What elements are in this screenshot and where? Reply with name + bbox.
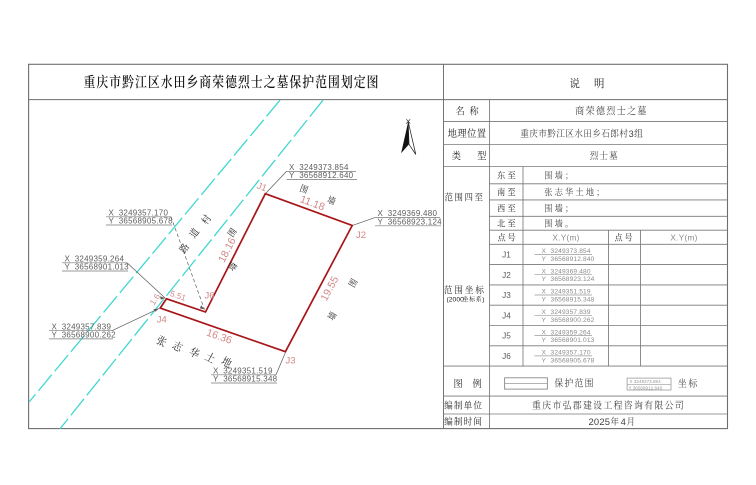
svg-text:36568900.262: 36568900.262 [62,331,116,340]
svg-text:36568901.013: 36568901.013 [75,263,129,272]
svg-text:J1: J1 [502,251,511,260]
svg-text:J3: J3 [502,291,511,300]
svg-text:4: 4 [621,416,626,427]
svg-text:Y: Y [542,357,547,364]
svg-text:Y 36568912.640: Y 36568912.640 [629,386,663,391]
svg-text:J5: J5 [502,332,511,341]
svg-text:36568912.840: 36568912.840 [551,256,595,263]
svg-text:Y: Y [542,337,547,344]
svg-text:36568915.348: 36568915.348 [551,297,595,304]
svg-text:3: 3 [629,129,634,139]
svg-text:X.Y(m): X.Y(m) [670,233,697,242]
svg-text:J2: J2 [356,230,366,241]
svg-text:36568912.640: 36568912.640 [299,171,353,180]
svg-text:Y: Y [52,331,58,340]
svg-text:Y: Y [109,217,115,226]
svg-text:J6: J6 [204,290,214,301]
svg-text:Y: Y [542,256,547,263]
svg-text:X 3249373.854: X 3249373.854 [630,379,662,384]
svg-text:Y: Y [213,375,219,384]
svg-text:36568900.262: 36568900.262 [551,317,595,324]
svg-text:(2000: (2000 [447,297,465,304]
svg-text:Y: Y [542,317,547,324]
svg-text:36568923.124: 36568923.124 [388,217,442,226]
svg-text:36568905.678: 36568905.678 [119,217,173,226]
svg-text:2025: 2025 [589,416,611,427]
svg-text:J4: J4 [157,315,167,326]
svg-text:36568901.013: 36568901.013 [551,337,595,344]
svg-text:Y: Y [542,276,547,283]
svg-text:): ) [482,297,484,304]
svg-text:36568915.348: 36568915.348 [223,375,277,384]
svg-text:J6: J6 [502,352,511,361]
svg-text:Y: Y [289,171,295,180]
svg-text:36568923.124: 36568923.124 [551,276,595,283]
svg-text:Y: Y [65,263,71,272]
svg-text:Y: Y [542,297,547,304]
svg-text:J4: J4 [502,311,511,320]
svg-text:J2: J2 [502,271,511,280]
svg-text:X.Y(m): X.Y(m) [552,233,579,242]
svg-text:36568905.678: 36568905.678 [551,357,595,364]
svg-text:Y: Y [378,217,384,226]
svg-text:J3: J3 [285,356,295,367]
